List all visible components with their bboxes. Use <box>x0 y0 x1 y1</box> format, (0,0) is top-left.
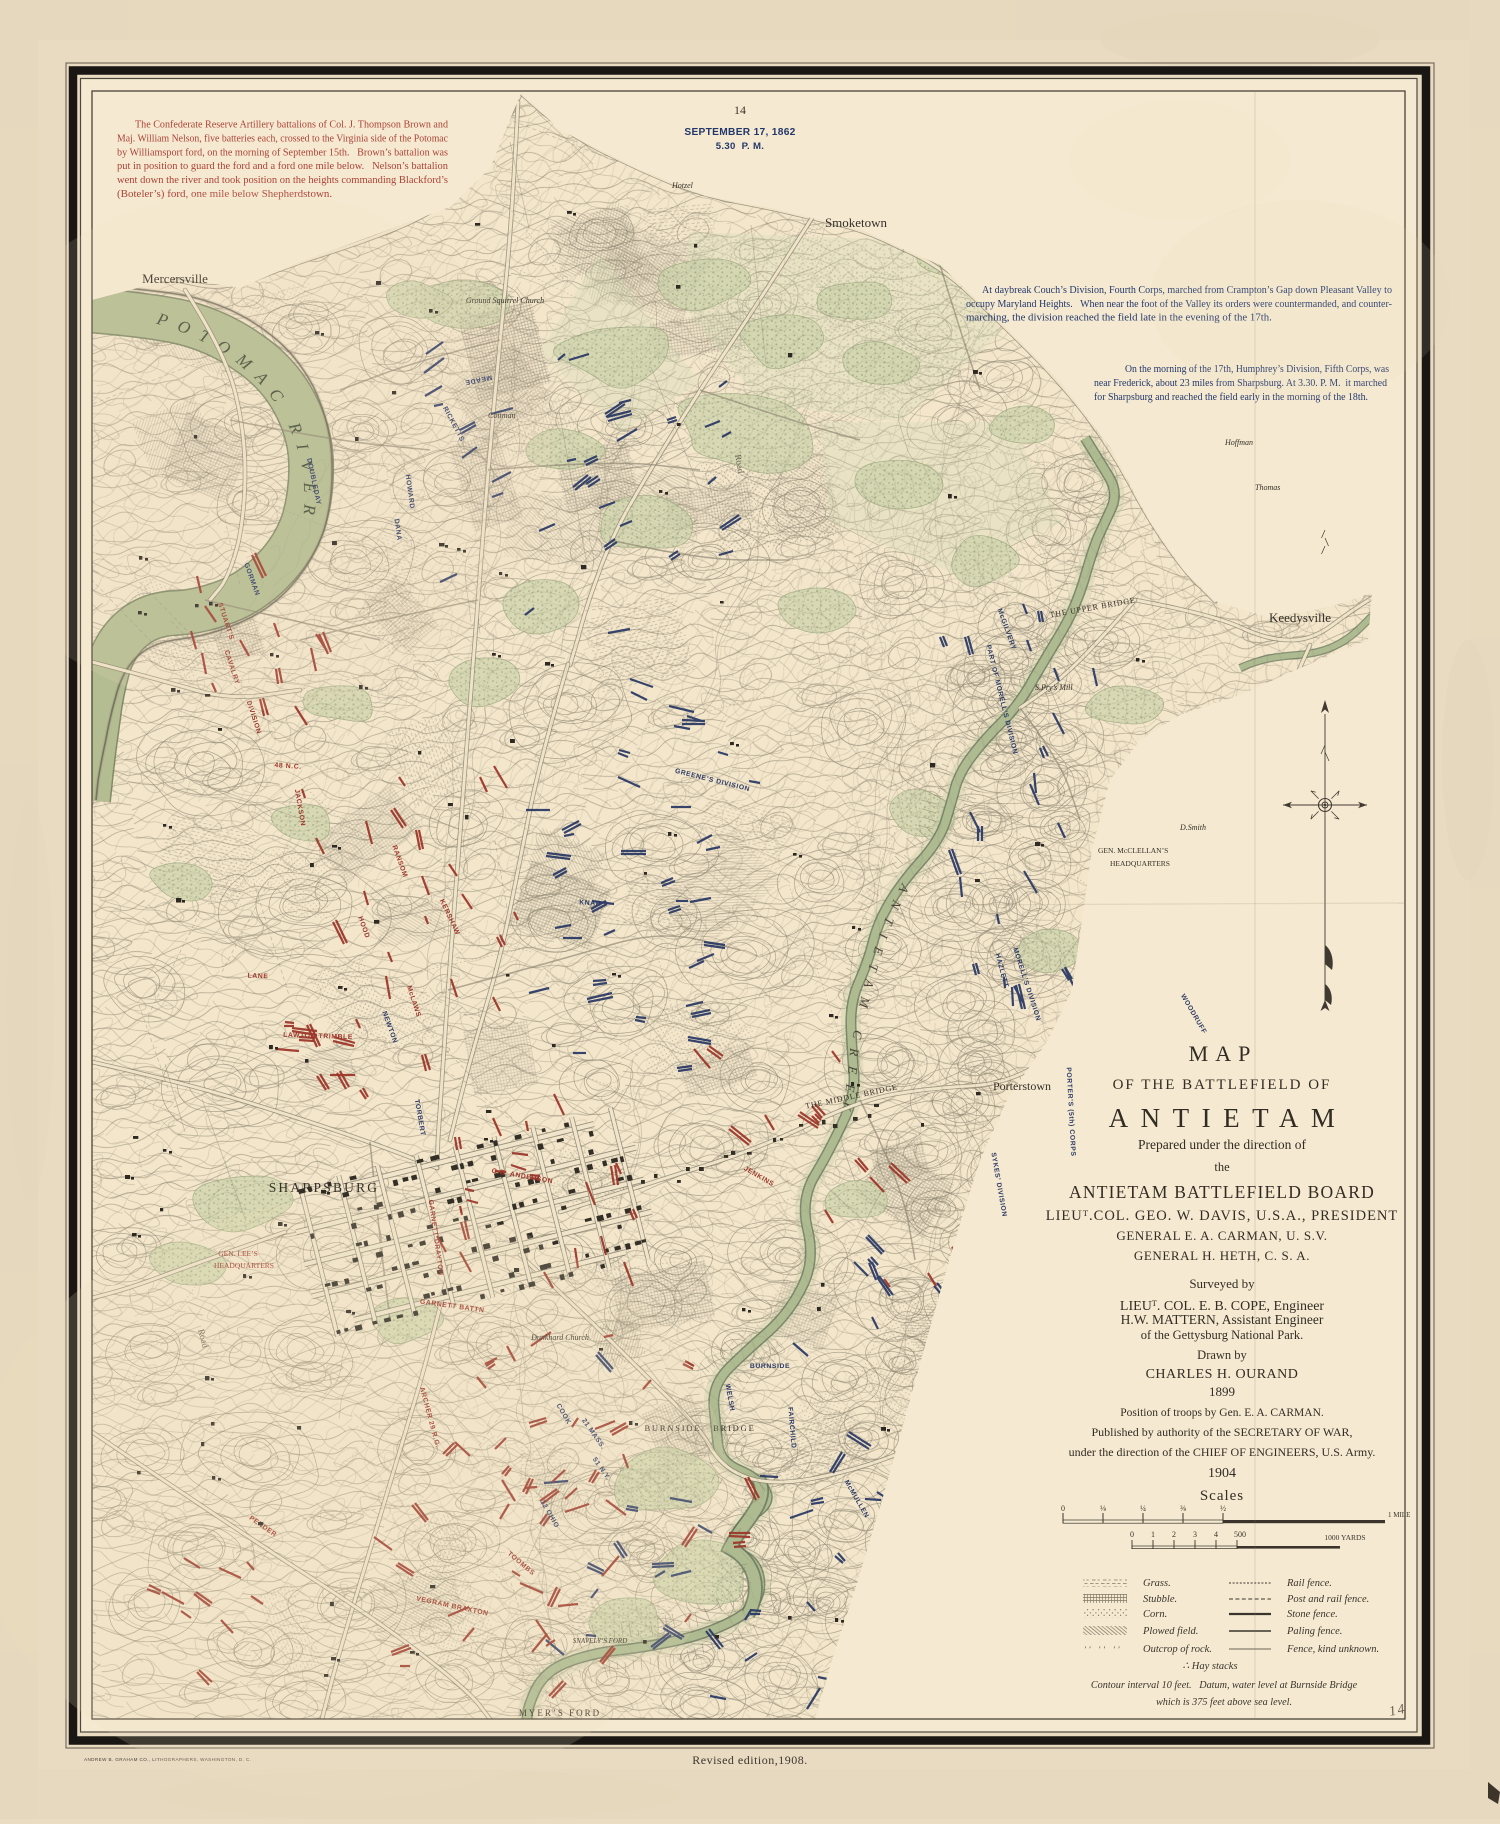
svg-text:Thomas: Thomas <box>1255 483 1280 492</box>
svg-text:⅛: ⅛ <box>1100 1504 1106 1513</box>
svg-text:2: 2 <box>1172 1530 1176 1539</box>
svg-text:Surveyed by: Surveyed by <box>1189 1276 1255 1291</box>
svg-text:Prepared under the direction o: Prepared under the direction of <box>1138 1137 1306 1152</box>
svg-text:Paling fence.: Paling fence. <box>1286 1626 1342 1637</box>
svg-text:MAP: MAP <box>1189 1041 1258 1066</box>
svg-text:Stone fence.: Stone fence. <box>1287 1609 1338 1620</box>
svg-text:the: the <box>1214 1160 1230 1174</box>
svg-text:GEN. MᴄCLELLAN’S: GEN. MᴄCLELLAN’S <box>1098 846 1168 855</box>
svg-text:Drawn by: Drawn by <box>1197 1348 1247 1362</box>
svg-text:GENERAL E. A. CARMAN, U. S.V.: GENERAL E. A. CARMAN, U. S.V. <box>1116 1228 1327 1243</box>
svg-text:5.30 P. M.: 5.30 P. M. <box>716 141 764 152</box>
svg-text:⅜: ⅜ <box>1180 1504 1186 1513</box>
svg-text:Rail fence.: Rail fence. <box>1286 1578 1332 1589</box>
svg-text:OF THE BATTLEFIELD OF: OF THE BATTLEFIELD OF <box>1113 1077 1332 1093</box>
svg-text:500: 500 <box>1234 1530 1246 1539</box>
svg-text:¼: ¼ <box>1140 1504 1146 1513</box>
svg-text:Smoketown: Smoketown <box>825 215 888 230</box>
svg-text:∴ Hay stacks: ∴ Hay stacks <box>1182 1661 1237 1672</box>
svg-text:0: 0 <box>1130 1530 1134 1539</box>
svg-text:Grass.: Grass. <box>1143 1578 1171 1589</box>
svg-text:which is 375 feet above sea le: which is 375 feet above sea level. <box>1156 1697 1292 1708</box>
svg-text:Post and rail fence.: Post and rail fence. <box>1286 1594 1369 1605</box>
svg-text:HEADQUARTERS: HEADQUARTERS <box>1110 859 1170 868</box>
svg-text:SEPTEMBER 17, 1862: SEPTEMBER 17, 1862 <box>684 127 795 138</box>
svg-text:Stubble.: Stubble. <box>1143 1594 1177 1605</box>
svg-text:Keedysville: Keedysville <box>1269 610 1331 625</box>
svg-text:14: 14 <box>734 103 746 117</box>
svg-text:4: 4 <box>1214 1530 1218 1539</box>
svg-text:put in position to guard the f: put in position to guard the ford and a … <box>117 160 448 172</box>
svg-text:D.Smith: D.Smith <box>1179 823 1206 832</box>
svg-text:Outcrop of rock.: Outcrop of rock. <box>1143 1644 1212 1655</box>
svg-text:1899: 1899 <box>1209 1384 1235 1399</box>
svg-text:1: 1 <box>1151 1530 1155 1539</box>
svg-text:by Williamsport ford, on the m: by Williamsport ford, on the morning of … <box>117 146 448 158</box>
svg-text:CHARLES H. OURAND: CHARLES H. OURAND <box>1146 1367 1299 1382</box>
svg-text:Porterstown: Porterstown <box>993 1079 1051 1093</box>
svg-text:LANE: LANE <box>247 973 268 981</box>
svg-text:Position of troops by Gen. E.: Position of troops by Gen. E. A. CARMAN. <box>1120 1407 1324 1419</box>
svg-text:′′ ′′ ′′: ′′ ′′ ′′ <box>1084 1645 1123 1654</box>
svg-text:under the direction of the CHI: under the direction of the CHIEF OF ENGI… <box>1069 1445 1376 1459</box>
svg-text:Fence, kind unknown.: Fence, kind unknown. <box>1286 1644 1379 1655</box>
svg-text:3: 3 <box>1193 1530 1197 1539</box>
svg-text:Hoffman: Hoffman <box>1224 438 1253 447</box>
svg-text:1904: 1904 <box>1208 1466 1236 1481</box>
svg-text:Published by authority of the: Published by authority of the SECRETARY … <box>1091 1425 1352 1439</box>
svg-text:H.W. MATTERN, Assistant Engine: H.W. MATTERN, Assistant Engineer <box>1121 1312 1324 1327</box>
svg-text:Plowed field.: Plowed field. <box>1142 1626 1198 1637</box>
svg-text:ANTIETAM BATTLEFIELD BOARD: ANTIETAM BATTLEFIELD BOARD <box>1069 1182 1375 1202</box>
svg-text:Revised edition,1908.: Revised edition,1908. <box>692 1753 808 1767</box>
svg-text:Hotzel: Hotzel <box>671 181 694 190</box>
svg-text:0: 0 <box>1061 1504 1065 1513</box>
svg-text:1000 YARDS: 1000 YARDS <box>1324 1533 1365 1542</box>
svg-text:S.Pry’s Mill: S.Pry’s Mill <box>1035 683 1073 692</box>
svg-text:of the Gettysburg National Par: of the Gettysburg National Park. <box>1141 1328 1304 1342</box>
svg-text:½: ½ <box>1220 1504 1226 1513</box>
svg-text:Corn.: Corn. <box>1143 1609 1167 1620</box>
svg-text:Scales: Scales <box>1200 1488 1244 1504</box>
svg-text:GENERAL H. HETH, C. S. A.: GENERAL H. HETH, C. S. A. <box>1134 1248 1310 1263</box>
svg-text:Maj. William Nelson, five batt: Maj. William Nelson, five batteries each… <box>117 132 448 144</box>
svg-text:went down the river and took p: went down the river and took position on… <box>117 174 448 186</box>
svg-text:BURNSIDE: BURNSIDE <box>750 1363 790 1370</box>
svg-text:ANTIETAM: ANTIETAM <box>1109 1103 1348 1133</box>
svg-text:LIEUᵀ.COL. GEO. W. DAVIS, U.S.: LIEUᵀ.COL. GEO. W. DAVIS, U.S.A., PRESID… <box>1046 1208 1399 1224</box>
svg-text:1 MILE: 1 MILE <box>1388 1511 1410 1519</box>
svg-text:The Confederate Reserve Artill: The Confederate Reserve Artillery battal… <box>135 119 448 131</box>
svg-text:Contour interval 10 feet. Dat: Contour interval 10 feet. Datum, water l… <box>1091 1680 1358 1691</box>
